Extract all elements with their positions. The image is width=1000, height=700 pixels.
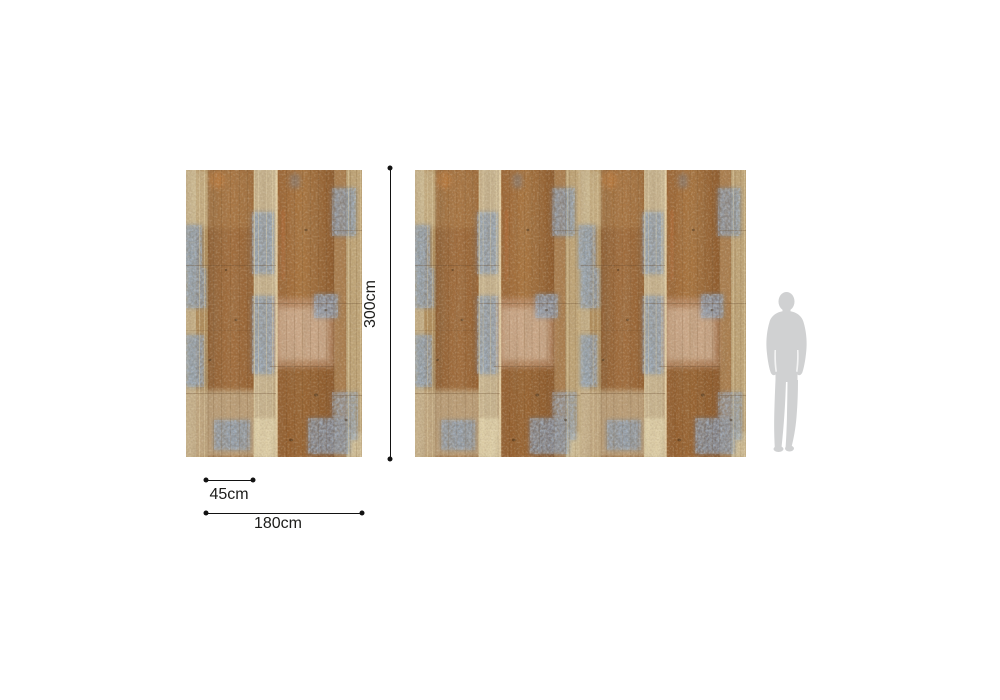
dimension-endpoint-dot — [360, 511, 365, 516]
wallpaper-repeat-preview — [415, 170, 746, 457]
wallpaper-repeat-artwork — [415, 170, 746, 457]
dimension-endpoint-dot — [204, 478, 209, 483]
wallpaper-panel-artwork — [186, 170, 362, 457]
height-dimension-label: 300cm — [363, 280, 379, 328]
panel-width-dimension-line — [206, 513, 362, 514]
strip-width-dimension-line — [206, 480, 253, 481]
dimension-endpoint-dot — [204, 511, 209, 516]
dimension-endpoint-dot — [388, 166, 393, 171]
dimension-endpoint-dot — [388, 457, 393, 462]
dimension-endpoint-dot — [251, 478, 256, 483]
strip-width-dimension-label: 45cm — [209, 487, 248, 503]
scale-diagram: 300cm 45cm 180cm — [0, 0, 1000, 700]
human-scale-silhouette-icon — [760, 292, 813, 454]
height-dimension-line — [390, 168, 391, 459]
panel-width-dimension-label: 180cm — [254, 516, 302, 532]
wallpaper-panel-preview — [186, 170, 362, 457]
